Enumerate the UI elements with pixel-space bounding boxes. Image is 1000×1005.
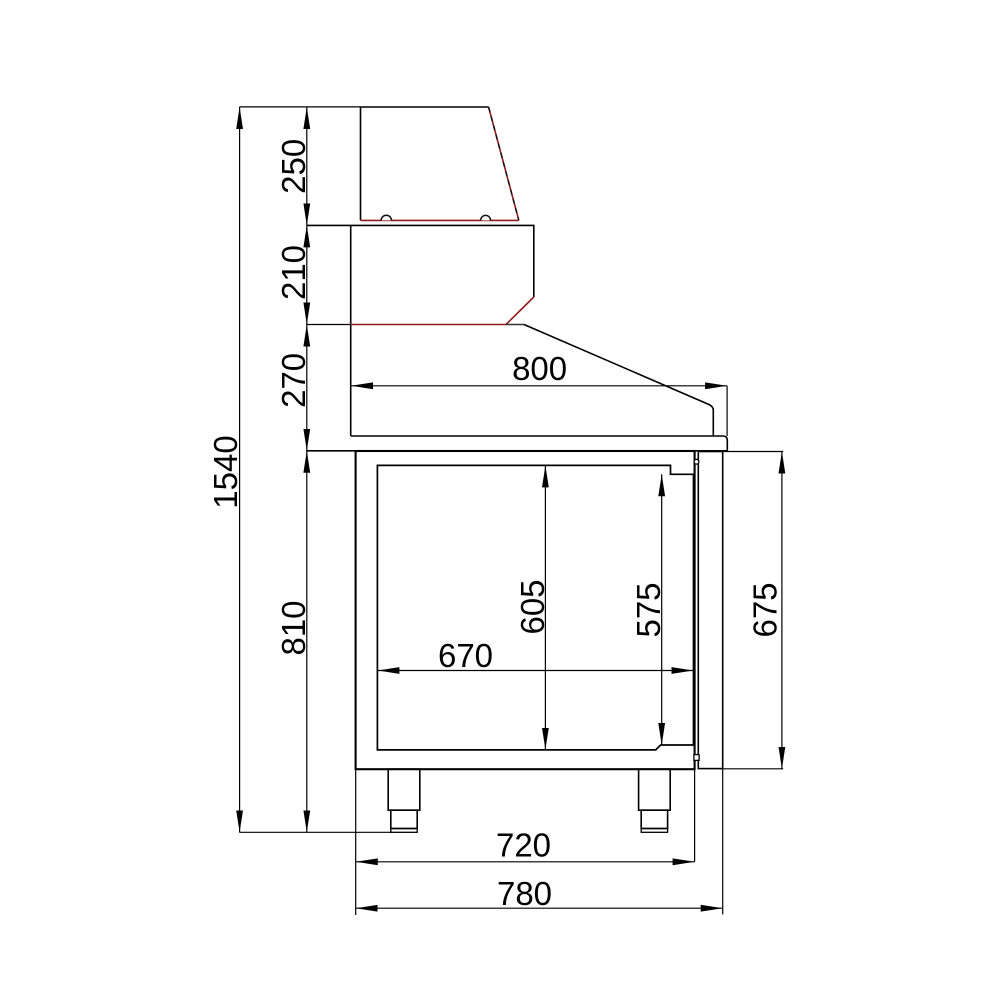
svg-text:250: 250 bbox=[275, 139, 312, 194]
svg-text:675: 675 bbox=[747, 582, 784, 637]
svg-text:800: 800 bbox=[512, 350, 567, 387]
svg-text:270: 270 bbox=[275, 353, 312, 408]
svg-text:605: 605 bbox=[514, 579, 551, 634]
svg-text:810: 810 bbox=[275, 600, 312, 655]
svg-text:575: 575 bbox=[630, 582, 667, 637]
svg-text:1540: 1540 bbox=[207, 435, 244, 508]
svg-text:780: 780 bbox=[497, 875, 552, 912]
svg-text:210: 210 bbox=[275, 245, 312, 300]
svg-text:720: 720 bbox=[496, 827, 551, 864]
svg-text:670: 670 bbox=[438, 637, 493, 674]
